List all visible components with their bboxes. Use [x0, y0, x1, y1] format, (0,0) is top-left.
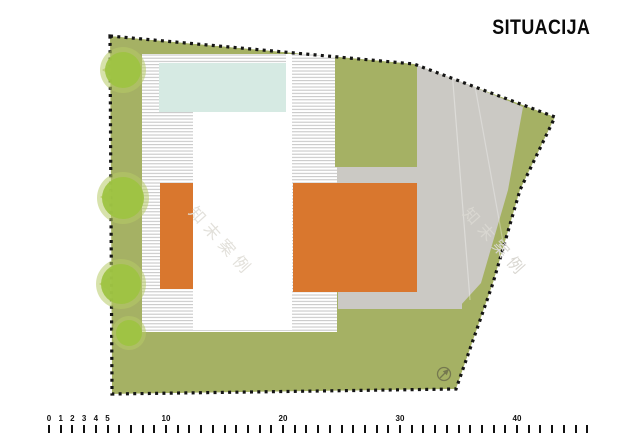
scale-tick: [399, 425, 401, 433]
scale-tick: [376, 425, 378, 433]
scale-tick: [235, 425, 237, 433]
scale-tick: [48, 425, 50, 433]
scale-tick: [71, 425, 73, 433]
scale-tick: [282, 425, 284, 433]
scale-label: 30: [396, 414, 405, 423]
scale-bar: 01234510203040: [0, 412, 630, 440]
scale-tick: [352, 425, 354, 433]
scale-tick: [130, 425, 132, 433]
scale-tick: [83, 425, 85, 433]
building-west-wing: [160, 183, 193, 289]
scale-label: 10: [162, 414, 171, 423]
scale-tick: [270, 425, 272, 433]
scale-tick: [165, 425, 167, 433]
scale-tick: [469, 425, 471, 433]
scale-tick: [247, 425, 249, 433]
tree-icon: [97, 172, 149, 224]
scale-tick: [188, 425, 190, 433]
scale-label: 40: [513, 414, 522, 423]
paved-strip-lower: [338, 291, 462, 309]
scale-tick: [294, 425, 296, 433]
scale-label: 3: [82, 414, 86, 423]
scale-label: 2: [70, 414, 74, 423]
scale-tick: [317, 425, 319, 433]
site-plan-drawing: [0, 0, 630, 445]
pool-edge-walk: [286, 54, 292, 112]
tree-icon: [96, 259, 146, 309]
paved-strip-upper: [337, 167, 417, 183]
scale-tick: [481, 425, 483, 433]
tree-icon: [100, 47, 146, 93]
scale-tick: [259, 425, 261, 433]
scale-tick: [364, 425, 366, 433]
scale-tick: [224, 425, 226, 433]
scale-label: 0: [47, 414, 51, 423]
scale-tick: [504, 425, 506, 433]
scale-tick: [107, 425, 109, 433]
scale-tick: [411, 425, 413, 433]
scale-tick: [516, 425, 518, 433]
scale-tick: [142, 425, 144, 433]
scale-tick: [586, 425, 588, 433]
scale-tick: [493, 425, 495, 433]
scale-tick: [422, 425, 424, 433]
scale-tick: [539, 425, 541, 433]
scale-label: 4: [94, 414, 98, 423]
tree-icon: [112, 316, 146, 350]
scale-tick: [60, 425, 62, 433]
scale-tick: [177, 425, 179, 433]
scale-tick: [305, 425, 307, 433]
scale-tick: [551, 425, 553, 433]
scale-label: 20: [279, 414, 288, 423]
scale-tick: [95, 425, 97, 433]
pool: [159, 63, 287, 112]
scale-tick: [563, 425, 565, 433]
scale-tick: [446, 425, 448, 433]
scale-tick: [528, 425, 530, 433]
site-plan-canvas: SITUACIJA 知末案例 知末案例 01234510203040: [0, 0, 630, 445]
scale-tick: [575, 425, 577, 433]
scale-tick: [458, 425, 460, 433]
main-building: [193, 112, 292, 330]
scale-tick: [329, 425, 331, 433]
scale-tick: [434, 425, 436, 433]
scale-tick: [212, 425, 214, 433]
scale-tick: [118, 425, 120, 433]
building-east-wing: [293, 183, 417, 292]
page-title: SITUACIJA: [492, 16, 590, 40]
scale-tick: [387, 425, 389, 433]
scale-label: 1: [58, 414, 62, 423]
scale-tick: [200, 425, 202, 433]
scale-tick: [153, 425, 155, 433]
scale-tick: [341, 425, 343, 433]
scale-label: 5: [105, 414, 109, 423]
green-block-area: [335, 48, 417, 167]
